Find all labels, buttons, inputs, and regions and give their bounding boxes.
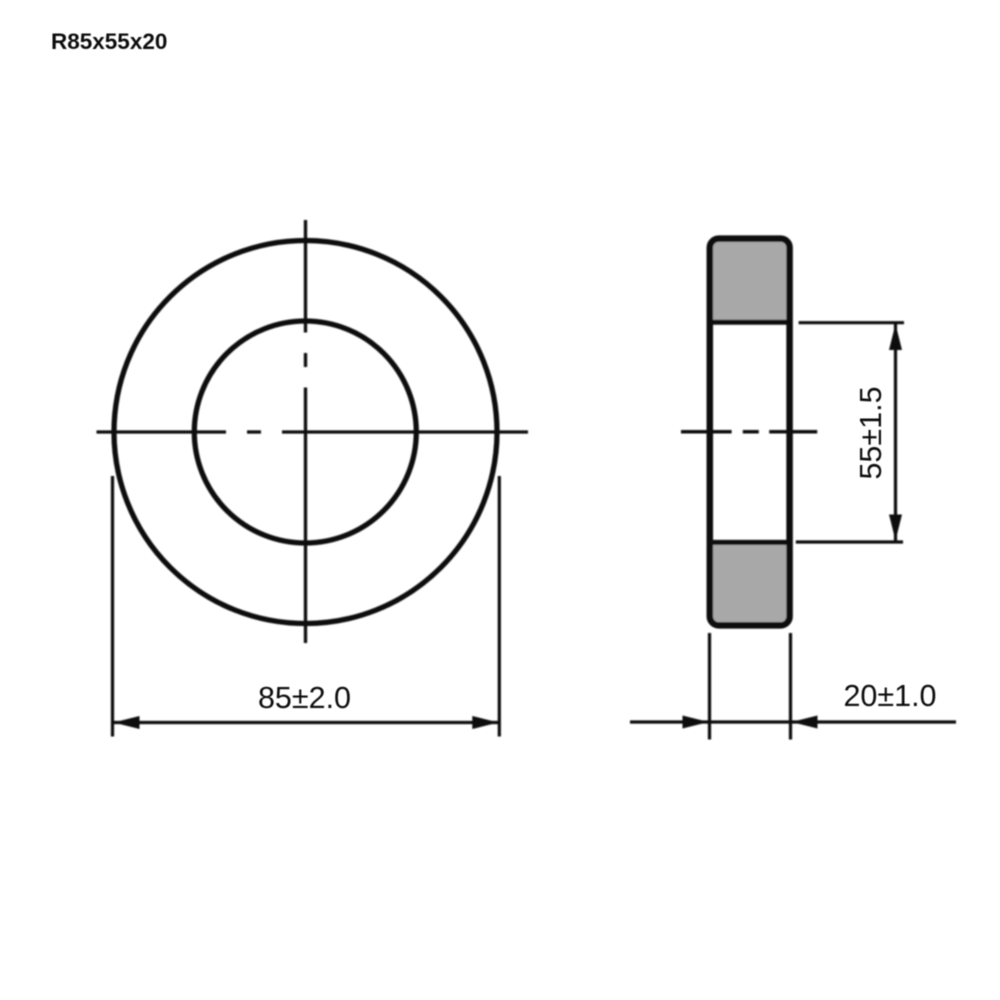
svg-text:55±1.5: 55±1.5 xyxy=(854,386,888,479)
svg-text:85±2.0: 85±2.0 xyxy=(258,681,351,715)
svg-text:R85x55x20: R85x55x20 xyxy=(51,29,167,54)
svg-text:20±1.0: 20±1.0 xyxy=(843,679,936,713)
